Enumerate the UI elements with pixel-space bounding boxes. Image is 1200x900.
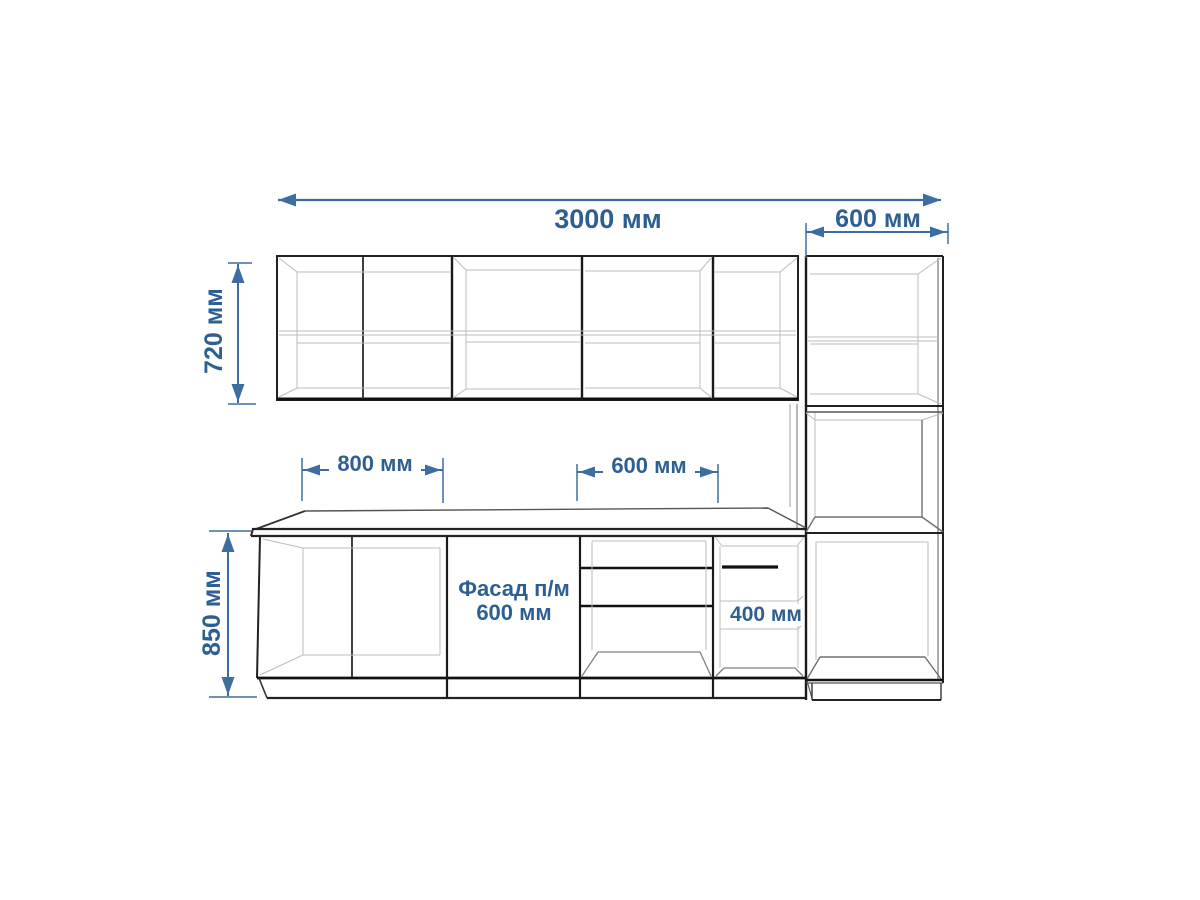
dimension-label-base-height: 850 мм [199,533,225,693]
wall-cabinet-run [277,256,798,400]
dimension-label-shelf-unit-400: 400 мм [728,604,804,626]
dimension-wall-height [228,263,256,404]
kitchen-elevation-drawing [0,0,1200,900]
base-unit-800-interior [260,539,440,675]
kitchen-elevation-diagram: 3000 мм 600 мм 720 мм 800 мм 600 мм 850 … [0,0,1200,900]
facade-unit-label-line1: Фасад п/м [434,577,594,601]
countertop [251,508,806,536]
facade-unit-label-line2: 600 мм [434,601,594,625]
wall-edge-lines [790,404,797,528]
tall-cabinet-niche [806,413,943,533]
dimension-label-base-unit-800: 800 мм [329,452,421,475]
base-unit-drawers [580,541,713,676]
tall-cabinet-plinth [806,681,943,700]
tall-cabinet-upper [806,258,943,412]
dimension-label-total-width: 3000 мм [528,205,688,233]
dimension-label-drawer-unit-600: 600 мм [603,454,695,477]
facade-unit-label: Фасад п/м 600 мм [434,577,594,625]
dimension-label-tall-cabinet-width: 600 мм [798,206,958,232]
dimension-label-wall-cabinet-height: 720 мм [201,251,227,411]
tall-cabinet-lower [806,542,943,680]
base-plinth [259,678,806,698]
